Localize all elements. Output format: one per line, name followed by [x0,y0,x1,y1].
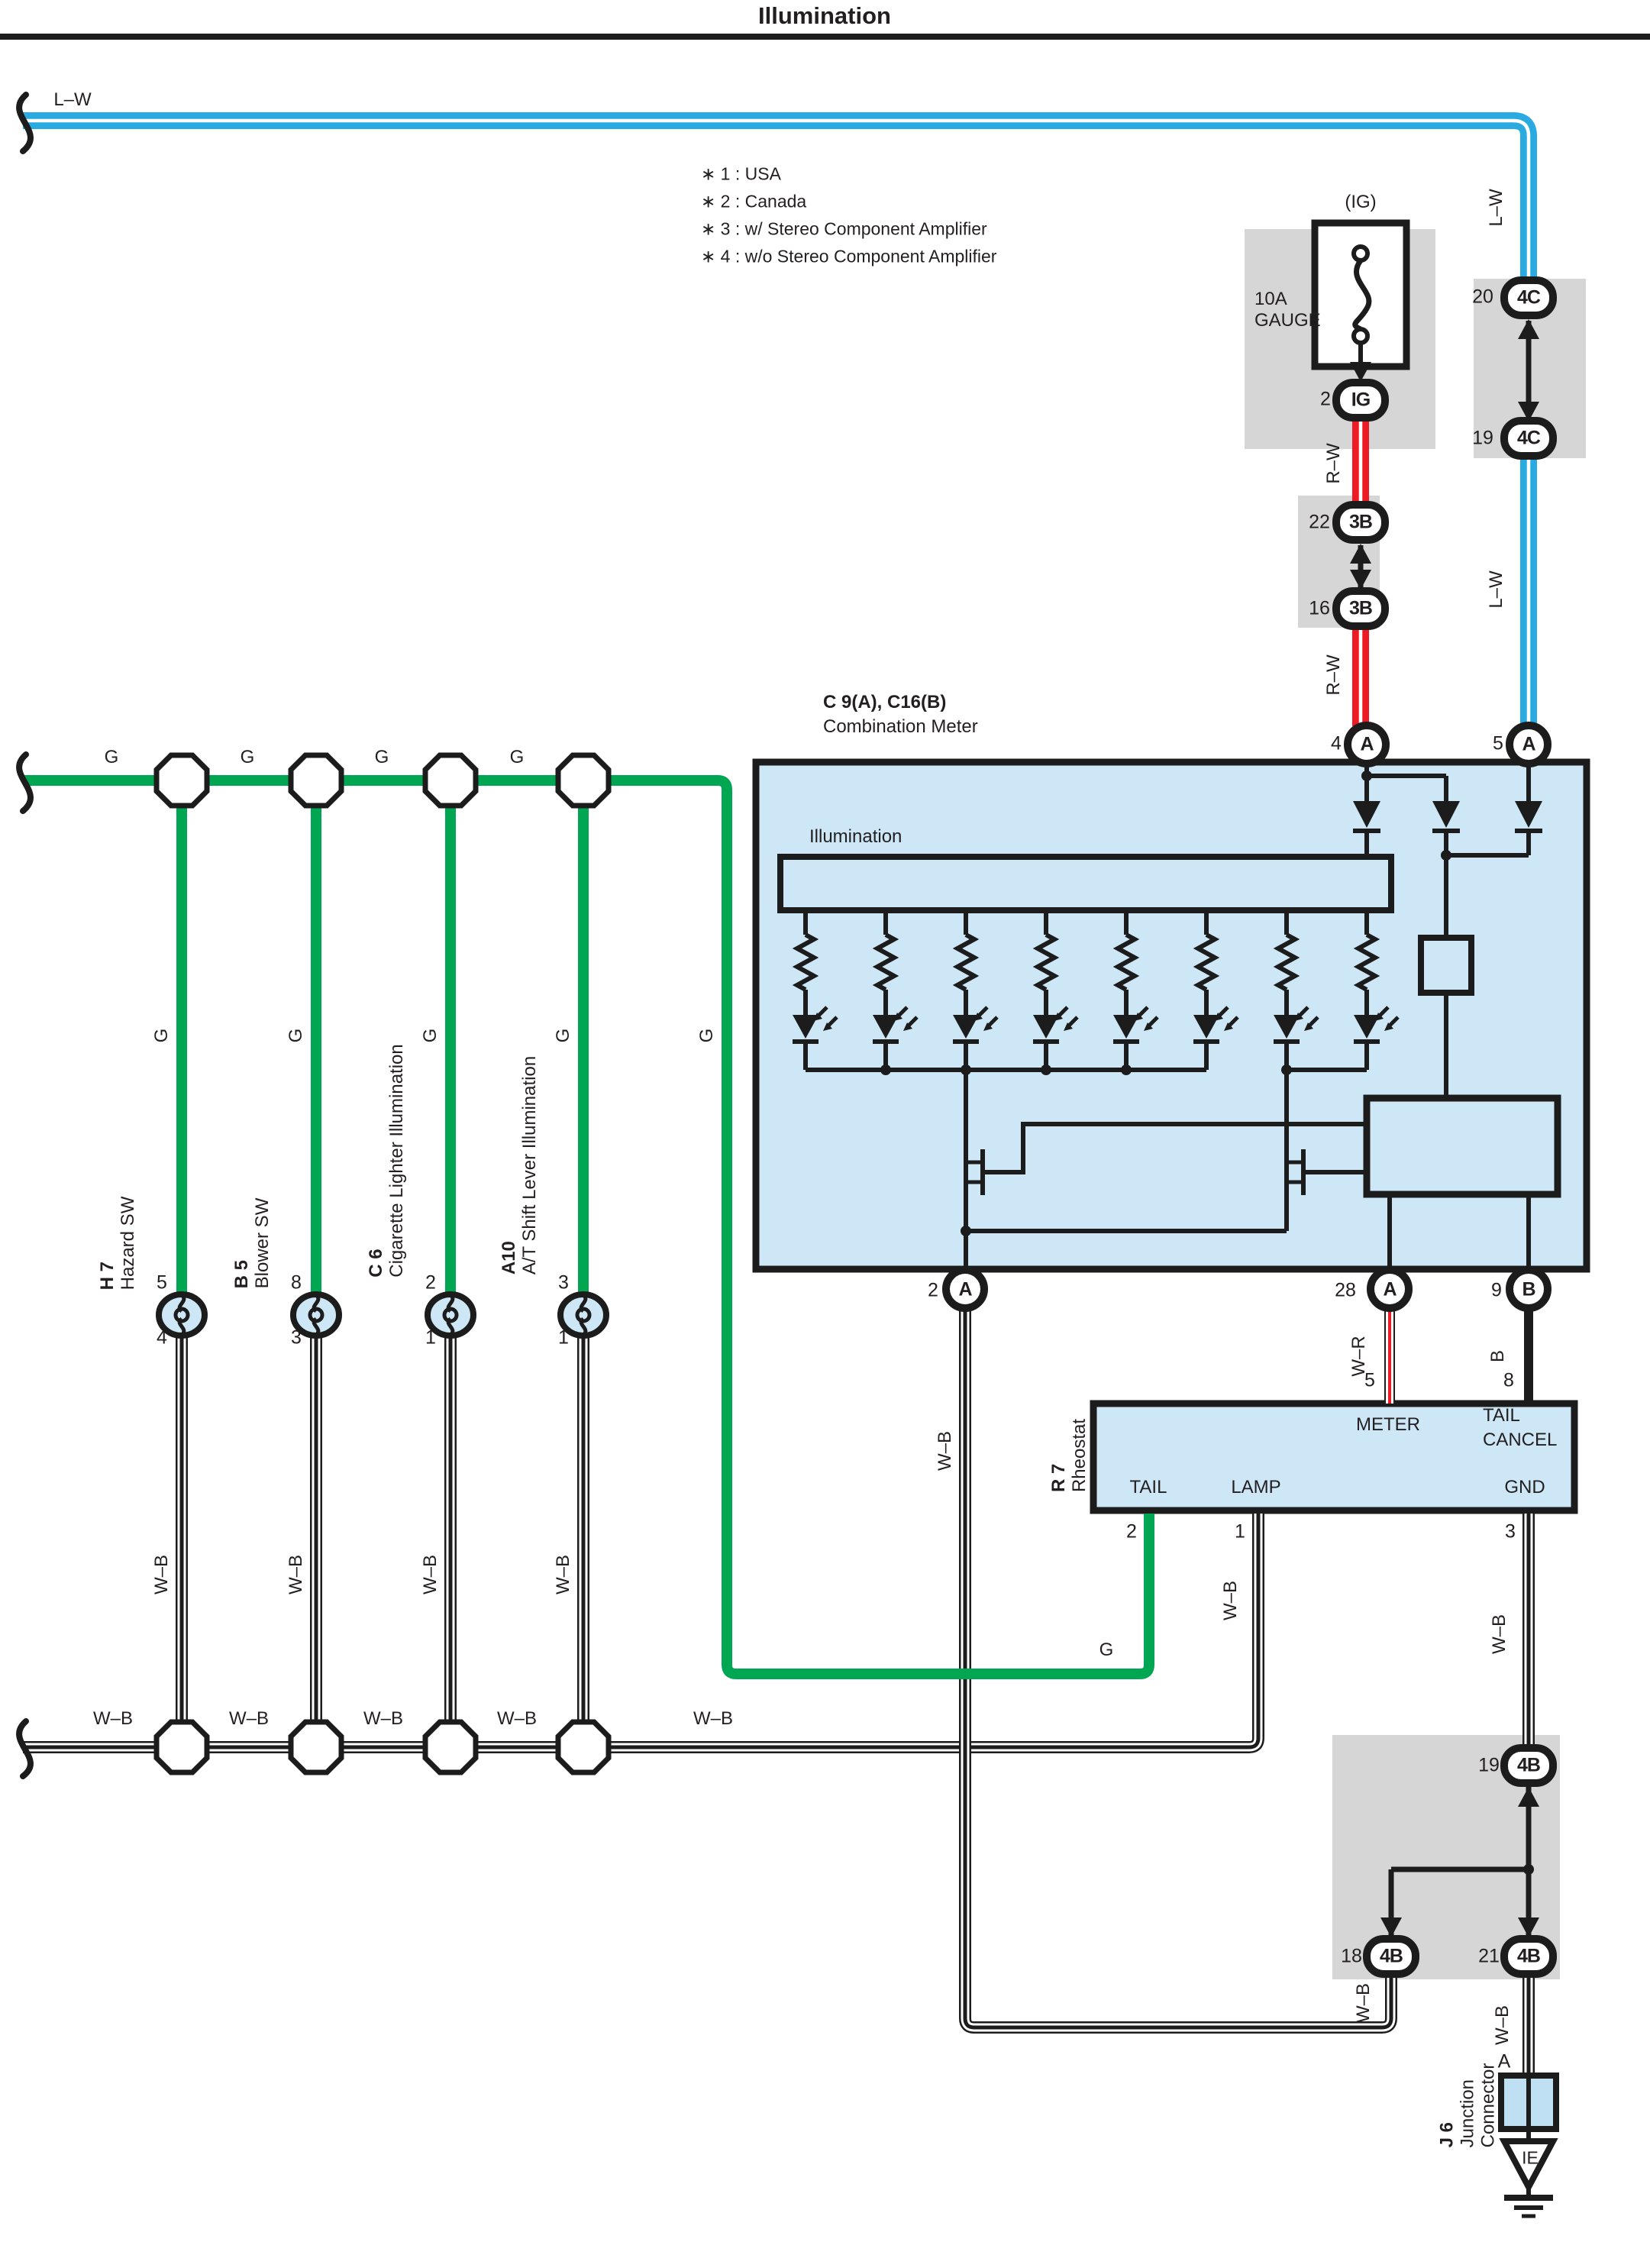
connector-code: 4B [1380,1946,1403,1968]
rheostat-label: R 7 Rheostat [1048,1419,1090,1492]
pin-number: 19 [1478,1755,1500,1777]
wire-label-rw: R–W [1323,443,1345,483]
wire-label-b: B [1487,1350,1509,1362]
j6-name: Connector [1478,2063,1499,2148]
pin-number: 18 [1341,1946,1362,1968]
pin-number: 5 [1364,1370,1375,1392]
connector-code: 3B [1349,512,1372,534]
break-marks [19,95,31,1776]
wire-label-g: G [286,1029,307,1043]
pin-number: 4 [157,1327,167,1349]
pin-number: 3 [1505,1521,1516,1543]
connector-code: 4B [1517,1946,1540,1968]
wire-label-lw: L–W [1486,570,1507,608]
j6-ref: J 6 [1437,2063,1458,2148]
wire-label-wb: W–B [1492,2005,1513,2045]
wire-label-g: G [420,1029,441,1043]
rheostat-pin-gnd: GND [1504,1477,1545,1498]
wire-label-wb: W–B [363,1708,403,1730]
note-line: ∗ 3 : w/ Stereo Component Amplifier [701,219,987,240]
diagram-graphics [0,0,1650,2268]
pin-number: 1 [1235,1521,1245,1543]
connector-code: A [1360,734,1373,756]
pin-number: 8 [1503,1370,1514,1392]
connector-code: 3B [1349,598,1372,620]
j6-ground [1501,2076,1556,2216]
wire-label-wb: W–B [151,1555,173,1594]
wire-label-g: G [553,1029,574,1043]
wire-label-lw: L–W [53,89,91,111]
switch-name: Hazard SW [118,1197,138,1291]
wiring-diagram-page: Illumination ∗ 1 : USA ∗ 2 : Canada ∗ 3 … [0,0,1650,2268]
switch-ref: C 6 [366,1044,386,1278]
j6-name: Junction [1458,2063,1478,2148]
switch-ref: A10 [499,1056,519,1275]
wire-label-wb: W–B [420,1555,441,1594]
wire-label-g: G [375,747,389,768]
wire-label-wb: W–B [553,1555,574,1594]
rheostat-pin-tailcancel: TAIL [1483,1405,1520,1426]
ground-code: IE [1522,2148,1539,2169]
rheostat-pin-meter: METER [1356,1414,1420,1436]
pin-number: 2 [1126,1521,1137,1543]
meter-name: Combination Meter [823,716,978,738]
rheostat-pin-tailcancel: CANCEL [1483,1430,1557,1451]
wire-label-rw: R–W [1323,654,1345,695]
pin-number: 21 [1478,1946,1500,1968]
pin-number: 1 [425,1327,436,1349]
pin-number: 5 [157,1272,167,1294]
switch-name: A/T Shift Lever Illumination [519,1056,540,1275]
wire-label-g: G [241,747,255,768]
pin-number: 3 [291,1327,302,1349]
wire-label-wb: W–B [93,1708,133,1730]
fuse-gauge [1315,223,1406,382]
switch-label-blower: B 5 Blower SW [231,1198,273,1289]
rheostat-pin-tail: TAIL [1130,1477,1167,1498]
connector-code: 4C [1517,428,1540,450]
wire-label-wb: W–B [497,1708,537,1730]
connector-code: A [1383,1279,1396,1301]
rheostat-name: Rheostat [1069,1419,1090,1492]
fuse-name: GAUGE [1254,310,1321,331]
wire-label-wb: W–B [693,1708,733,1730]
wire-label-g: G [1099,1640,1114,1661]
pin-number: 3 [558,1272,569,1294]
wire-label-wb: W–B [1353,1983,1374,2023]
pin-number: 1 [558,1327,569,1349]
pin-number: 22 [1309,512,1330,534]
pin-number: 9 [1491,1280,1502,1302]
pin-number: 19 [1472,428,1493,450]
note-line: ∗ 1 : USA [701,164,781,185]
wire-label-wb: W–B [1220,1581,1242,1620]
pin-number: 4 [1331,733,1342,755]
wire-label-g: G [105,747,119,768]
page-title: Illumination [758,2,891,30]
pin-number: 28 [1335,1280,1356,1302]
fuse-rating: 10A [1254,289,1287,310]
rheostat-pin-lamp: LAMP [1231,1477,1280,1498]
pin-number: 2 [425,1272,436,1294]
switch-label-hazard: H 7 Hazard SW [97,1197,138,1291]
switch-ref: B 5 [231,1198,252,1289]
connector-code: A [1522,734,1535,756]
connector-code: IG [1351,389,1370,412]
wire-label-wb: W–B [935,1431,956,1471]
pin-number: 16 [1309,598,1330,620]
j6-label: J 6 Junction Connector [1437,2063,1499,2148]
switch-ref: H 7 [97,1197,118,1291]
rheostat-ref: R 7 [1048,1419,1069,1492]
note-line: ∗ 4 : w/o Stereo Component Amplifier [701,247,996,267]
pin-number: A [1498,2051,1511,2073]
switch-lamps [159,1294,606,1336]
note-line: ∗ 2 : Canada [701,192,806,212]
wire-label-wb: W–B [1489,1614,1510,1654]
switch-name: Blower SW [252,1198,273,1289]
title-rule [0,34,1650,40]
pin-number: 8 [291,1272,302,1294]
meter-section-label: Illumination [809,826,902,848]
switch-label-shift-lever: A10 A/T Shift Lever Illumination [499,1056,540,1275]
pin-number: 2 [928,1280,938,1302]
wire-label-lw: L–W [1486,189,1507,226]
wire-label-g: G [510,747,525,768]
connector-code: 4B [1517,1755,1540,1777]
wire-label-wb: W–B [286,1555,307,1594]
switch-label-cig-lighter: C 6 Cigarette Lighter Illumination [366,1044,407,1278]
wire-label-g: G [151,1029,173,1043]
fuse-circuit-label: (IG) [1345,192,1376,213]
pin-number: 2 [1320,389,1331,411]
connector-code: A [958,1279,971,1301]
pin-number: 20 [1472,286,1493,309]
connector-code: 4C [1517,287,1540,309]
switch-name: Cigarette Lighter Illumination [386,1044,407,1278]
connector-code: B [1522,1279,1535,1301]
pin-number: 5 [1493,733,1503,755]
meter-ref: C 9(A), C16(B) [823,692,946,713]
wire-label-wb: W–B [229,1708,269,1730]
wire-label-g: G [696,1029,718,1043]
